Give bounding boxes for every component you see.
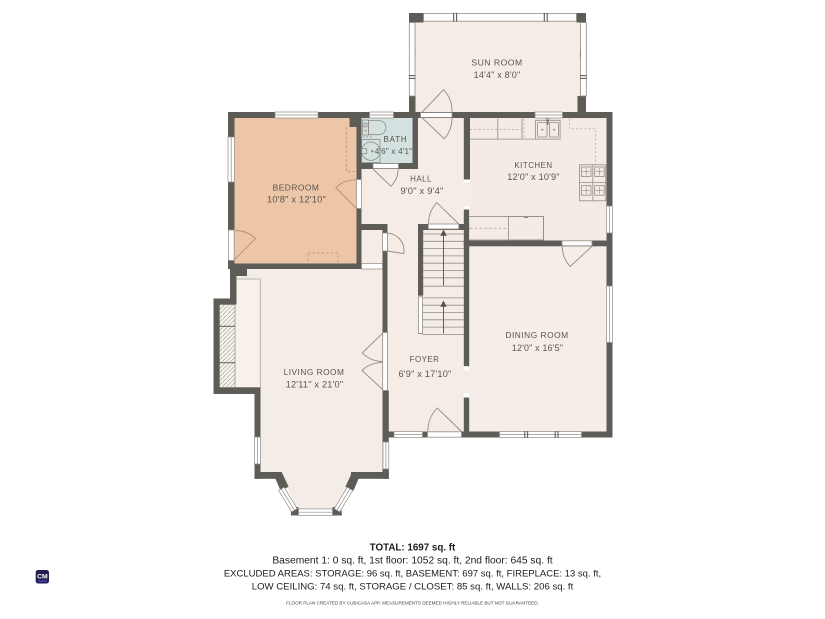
- svg-text:BATH: BATH: [384, 135, 408, 144]
- svg-text:BEDROOM: BEDROOM: [273, 183, 320, 193]
- svg-text:CM: CM: [37, 574, 48, 581]
- svg-text:Basement 1: 0 sq. ft, 1st floo: Basement 1: 0 sq. ft, 1st floor: 1052 sq…: [272, 556, 552, 567]
- svg-text:SUN ROOM: SUN ROOM: [471, 57, 522, 67]
- svg-text:14'4" x 8'0": 14'4" x 8'0": [474, 70, 521, 80]
- svg-text:12'11" x 21'0": 12'11" x 21'0": [286, 379, 344, 389]
- svg-text:12'0" x 16'5": 12'0" x 16'5": [512, 343, 563, 353]
- svg-text:KITCHEN: KITCHEN: [514, 161, 552, 170]
- svg-text:TOTAL: 1697 sq. ft: TOTAL: 1697 sq. ft: [370, 543, 456, 554]
- svg-text:EXCLUDED AREAS: STORAGE: 96 sq: EXCLUDED AREAS: STORAGE: 96 sq. ft, BASE…: [224, 569, 601, 580]
- svg-text:HALL: HALL: [410, 175, 432, 184]
- svg-text:9'0" x 9'4": 9'0" x 9'4": [400, 185, 443, 196]
- svg-text:4'6" x 4'1": 4'6" x 4'1": [375, 147, 413, 156]
- svg-text:FOYER: FOYER: [410, 355, 440, 364]
- svg-text:12'0" x 10'9": 12'0" x 10'9": [507, 172, 559, 182]
- svg-text:LOW CEILING: 74 sq. ft, STORAG: LOW CEILING: 74 sq. ft, STORAGE / CLOSET…: [252, 582, 574, 593]
- svg-text:DINING ROOM: DINING ROOM: [505, 330, 568, 340]
- svg-text:6'9" x 17'10": 6'9" x 17'10": [399, 369, 452, 379]
- svg-text:10'8" x 12'10": 10'8" x 12'10": [267, 194, 326, 204]
- svg-text:FLOOR PLAN CREATED BY CUBICASA: FLOOR PLAN CREATED BY CUBICASA APP. MEAS…: [286, 600, 539, 605]
- svg-text:LIVING ROOM: LIVING ROOM: [284, 367, 345, 377]
